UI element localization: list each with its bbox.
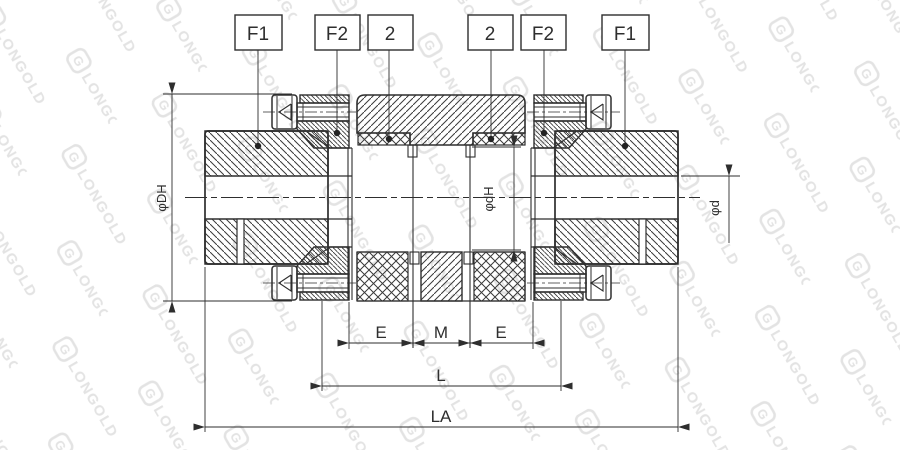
dim-text-phi-d: φd xyxy=(707,200,722,216)
dim-text-LA: LA xyxy=(431,407,452,426)
part-label-f1-left: F1 xyxy=(247,24,269,45)
hub-clamp-slit xyxy=(639,219,646,264)
part-label-f2-left: F2 xyxy=(326,24,348,45)
dim-text-E-right: E xyxy=(495,323,506,342)
dim-text-M: M xyxy=(434,323,448,342)
sleeve-bottom-jaw xyxy=(421,252,462,301)
dim-text-L: L xyxy=(436,366,445,385)
part-label-2-left: 2 xyxy=(385,24,396,45)
part-label-2-right: 2 xyxy=(485,24,496,45)
part-label-f2-right: F2 xyxy=(532,24,554,45)
part-label-f1-right: F1 xyxy=(614,24,636,45)
coupling-section-drawing: G LONGOLD G LONGOLD xyxy=(0,0,900,450)
dim-text-phi-DH: φDH xyxy=(154,184,169,211)
hub-clamp-slit xyxy=(237,219,244,264)
watermark-layer xyxy=(0,0,900,450)
dim-text-phi-dH: φdH xyxy=(481,186,496,211)
dim-text-E-left: E xyxy=(375,323,386,342)
coupling-drawing-page: G LONGOLD G LONGOLD xyxy=(0,0,900,450)
